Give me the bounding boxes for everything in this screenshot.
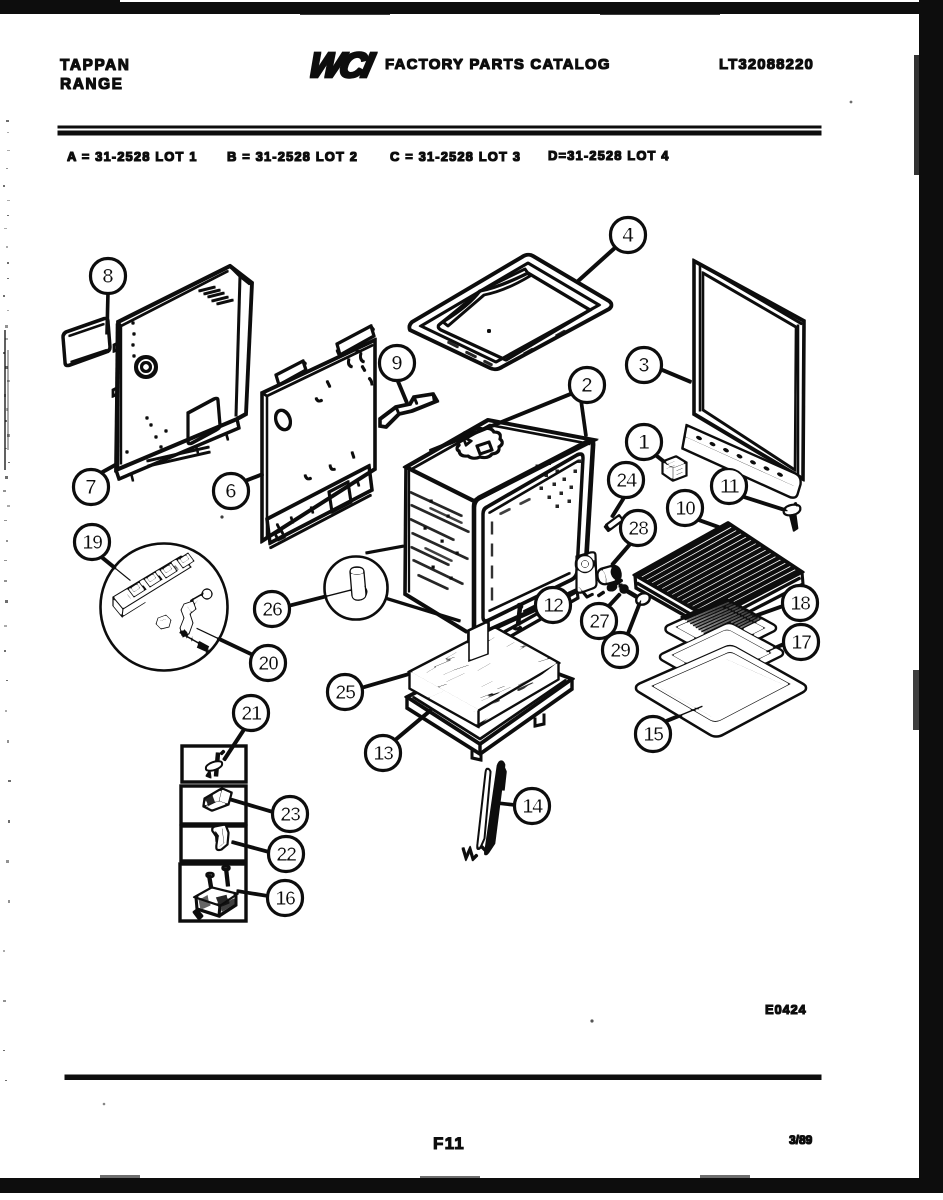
- svg-text:18: 18: [790, 593, 811, 615]
- svg-text:7: 7: [85, 476, 97, 499]
- svg-text:24: 24: [616, 470, 638, 492]
- svg-text:6: 6: [225, 480, 237, 503]
- svg-text:29: 29: [610, 640, 631, 662]
- svg-text:D=31-2528 LOT 4: D=31-2528 LOT 4: [548, 148, 670, 163]
- svg-text:12: 12: [543, 595, 564, 617]
- svg-text:8: 8: [102, 265, 114, 288]
- svg-text:11: 11: [720, 476, 740, 498]
- svg-text:21: 21: [241, 703, 262, 725]
- svg-text:2: 2: [581, 374, 593, 397]
- svg-text:22: 22: [276, 844, 297, 866]
- svg-text:13: 13: [373, 743, 394, 765]
- svg-text:3/89: 3/89: [789, 1133, 813, 1147]
- svg-text:B = 31-2528 LOT 2: B = 31-2528 LOT 2: [227, 149, 358, 164]
- svg-text:10: 10: [675, 498, 696, 520]
- svg-text:9: 9: [391, 352, 403, 375]
- svg-text:F11: F11: [433, 1134, 465, 1153]
- svg-text:17: 17: [791, 632, 812, 654]
- svg-text:WCI: WCI: [305, 45, 378, 84]
- svg-text:19: 19: [82, 532, 103, 554]
- svg-text:14: 14: [522, 796, 544, 818]
- svg-text:TAPPAN: TAPPAN: [60, 57, 130, 74]
- svg-text:3: 3: [638, 354, 650, 377]
- svg-text:RANGE: RANGE: [60, 76, 123, 93]
- svg-text:23: 23: [280, 804, 301, 826]
- svg-text:C = 31-2528 LOT 3: C = 31-2528 LOT 3: [390, 149, 521, 164]
- svg-text:E0424: E0424: [765, 1002, 807, 1017]
- svg-text:28: 28: [628, 518, 649, 540]
- svg-text:1: 1: [638, 431, 650, 454]
- svg-text:16: 16: [275, 888, 296, 910]
- svg-text:4: 4: [622, 224, 634, 247]
- svg-text:FACTORY PARTS CATALOG: FACTORY PARTS CATALOG: [385, 56, 611, 73]
- svg-text:LT32088220: LT32088220: [719, 56, 814, 73]
- svg-text:25: 25: [335, 682, 356, 704]
- svg-text:27: 27: [589, 611, 610, 633]
- svg-text:A = 31-2528 LOT 1: A = 31-2528 LOT 1: [67, 149, 198, 164]
- svg-text:26: 26: [262, 599, 283, 621]
- svg-text:20: 20: [258, 653, 279, 675]
- svg-text:15: 15: [643, 724, 664, 746]
